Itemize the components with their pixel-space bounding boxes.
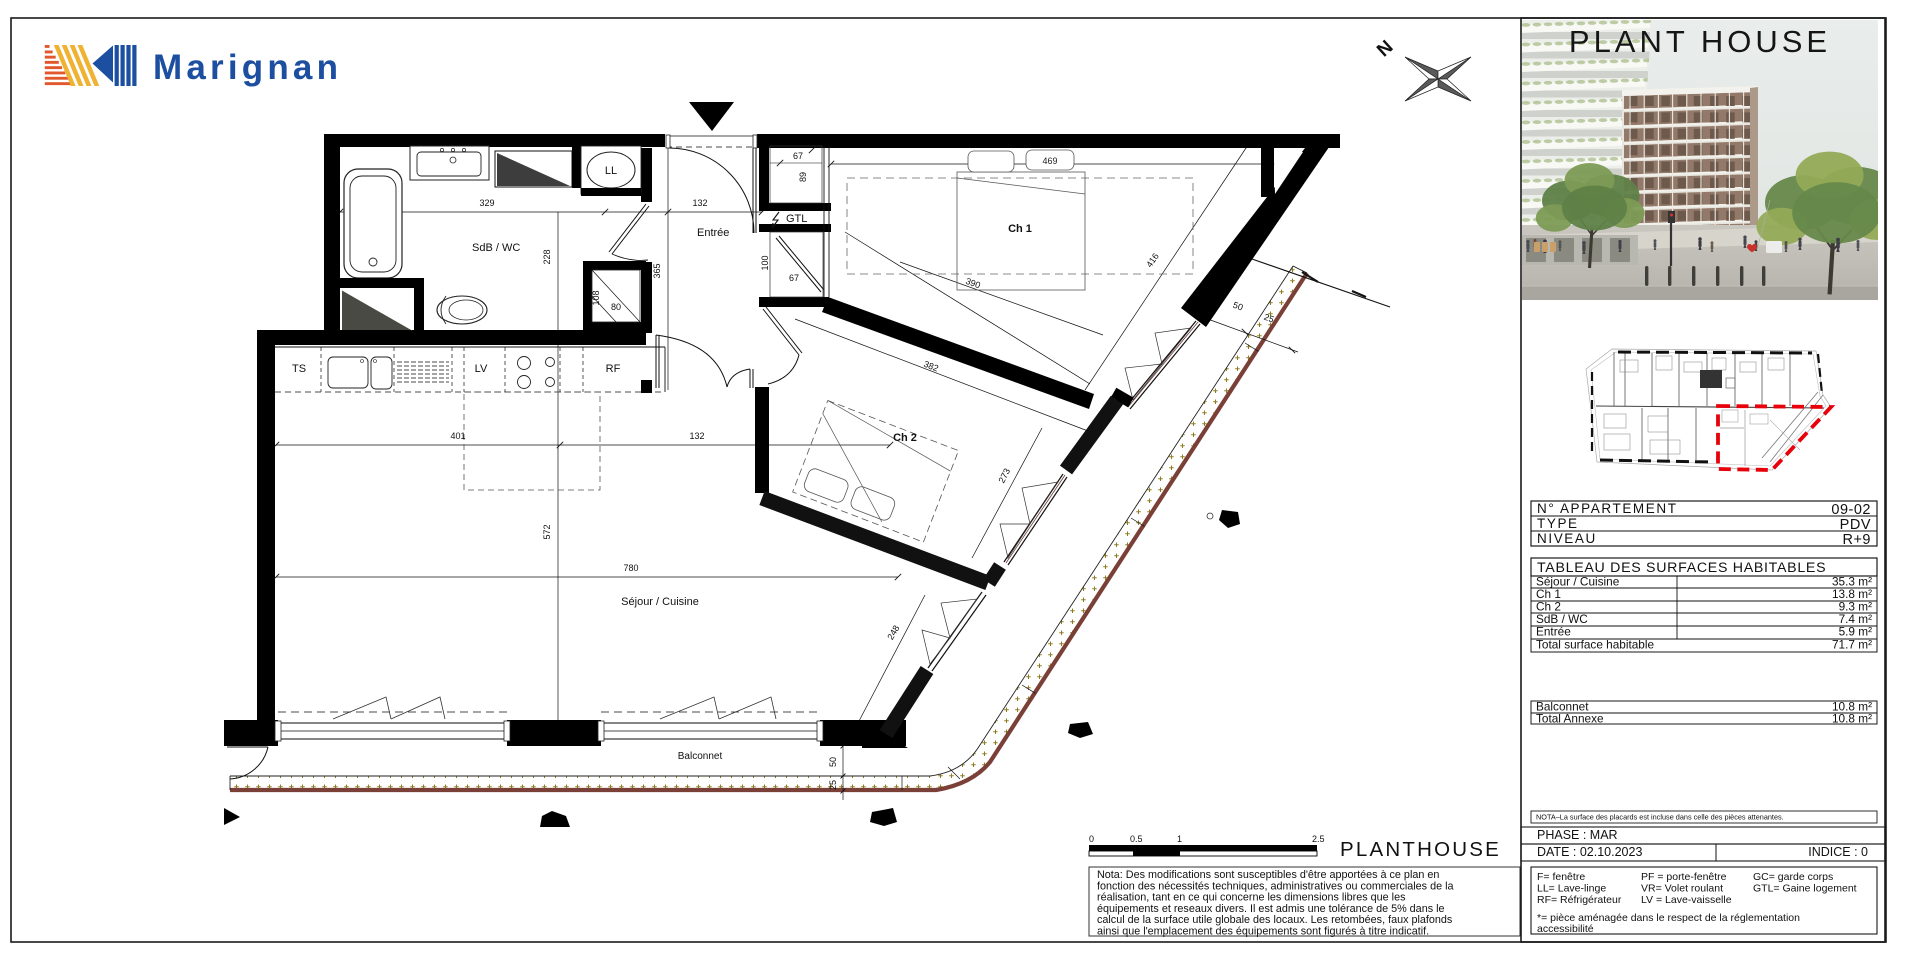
svg-text:0.5: 0.5 — [1130, 834, 1143, 844]
svg-text:0: 0 — [1089, 834, 1094, 844]
svg-text:67: 67 — [789, 273, 799, 283]
svg-text:LV = Lave-vaisselle: LV = Lave-vaisselle — [1641, 894, 1732, 906]
svg-text:fonction des nécessités techni: fonction des nécessités techniques, admi… — [1097, 880, 1453, 892]
svg-text:100: 100 — [760, 255, 770, 270]
svg-text:TS: TS — [292, 363, 306, 375]
svg-text:Balconnet: Balconnet — [678, 751, 723, 762]
svg-text:365: 365 — [652, 263, 662, 278]
svg-text:71.7 m²: 71.7 m² — [1832, 638, 1872, 652]
svg-text:401: 401 — [450, 431, 465, 441]
svg-text:N° APPARTEMENT: N° APPARTEMENT — [1537, 501, 1678, 516]
svg-text:PF = porte-fenêtre: PF = porte-fenêtre — [1641, 871, 1727, 883]
svg-text:NIVEAU: NIVEAU — [1537, 531, 1597, 546]
svg-text:329: 329 — [479, 198, 494, 208]
svg-text:calcul de la surface utile glo: calcul de la surface utile globale des l… — [1097, 914, 1453, 926]
svg-text:LL: LL — [605, 165, 617, 177]
svg-text:RF= Réfrigérateur: RF= Réfrigérateur — [1537, 894, 1622, 906]
svg-text:LL= Lave-linge: LL= Lave-linge — [1537, 883, 1606, 895]
svg-text:SdB / WC: SdB / WC — [472, 242, 520, 254]
svg-text:132: 132 — [689, 431, 704, 441]
svg-text:NOTA–La surface des placards e: NOTA–La surface des placards est incluse… — [1536, 813, 1784, 822]
svg-text:accessibilité: accessibilité — [1537, 923, 1594, 935]
svg-text:Entrée: Entrée — [1536, 625, 1571, 639]
svg-text:F= fenêtre: F= fenêtre — [1537, 871, 1585, 883]
svg-text:1: 1 — [1177, 834, 1182, 844]
svg-text:Marignan: Marignan — [153, 48, 342, 87]
svg-text:572: 572 — [542, 524, 552, 539]
svg-text:5.9 m²: 5.9 m² — [1839, 625, 1873, 639]
svg-text:PLANT HOUSE: PLANT HOUSE — [1569, 24, 1831, 59]
svg-text:PDV: PDV — [1840, 517, 1871, 533]
svg-text:R+9: R+9 — [1842, 532, 1871, 548]
svg-text:PLANTHOUSE: PLANTHOUSE — [1340, 838, 1501, 861]
svg-text:132: 132 — [692, 198, 707, 208]
svg-text:VR= Volet roulant: VR= Volet roulant — [1641, 883, 1723, 895]
svg-text:GTL= Gaine logement: GTL= Gaine logement — [1753, 883, 1857, 895]
svg-text:TYPE: TYPE — [1537, 516, 1579, 531]
svg-text:GTL: GTL — [786, 213, 807, 225]
svg-text:67: 67 — [793, 151, 803, 161]
svg-text:25: 25 — [828, 780, 838, 790]
svg-text:LV: LV — [475, 363, 488, 375]
svg-text:108: 108 — [591, 290, 601, 305]
svg-text:INDICE : 0: INDICE : 0 — [1808, 845, 1868, 859]
svg-text:réalisation, tant en ce qui co: réalisation, tant en ce qui concerne les… — [1097, 892, 1406, 904]
svg-text:équipements et reseaux divers.: équipements et reseaux divers. Il est ad… — [1097, 903, 1445, 915]
svg-text:50: 50 — [828, 757, 838, 767]
svg-text:Nota: Des modifications sont s: Nota: Des modifications sont susceptible… — [1097, 869, 1439, 881]
svg-text:Entrée: Entrée — [697, 227, 729, 239]
svg-text:GC= garde corps: GC= garde corps — [1753, 871, 1833, 883]
svg-text:09-02: 09-02 — [1831, 502, 1871, 518]
svg-text:80: 80 — [611, 302, 621, 312]
svg-text:780: 780 — [623, 563, 638, 573]
svg-text:PHASE : MAR: PHASE : MAR — [1537, 828, 1618, 842]
svg-text:Ch 2: Ch 2 — [893, 432, 917, 444]
svg-text:2.5: 2.5 — [1312, 834, 1325, 844]
svg-text:89: 89 — [798, 172, 808, 182]
svg-text:Total surface habitable: Total surface habitable — [1536, 638, 1654, 652]
svg-text:228: 228 — [542, 249, 552, 264]
svg-text:Ch 1: Ch 1 — [1008, 223, 1032, 235]
svg-text:Séjour / Cuisine: Séjour / Cuisine — [621, 596, 699, 608]
svg-text:10.8 m²: 10.8 m² — [1832, 712, 1872, 726]
svg-text:Total Annexe: Total Annexe — [1536, 712, 1604, 726]
svg-text:ainsi que l'emplacement des éq: ainsi que l'emplacement des équipements … — [1097, 926, 1429, 938]
svg-text:DATE : 02.10.2023: DATE : 02.10.2023 — [1537, 845, 1642, 859]
svg-text:RF: RF — [606, 363, 621, 375]
svg-text:469: 469 — [1042, 156, 1057, 166]
